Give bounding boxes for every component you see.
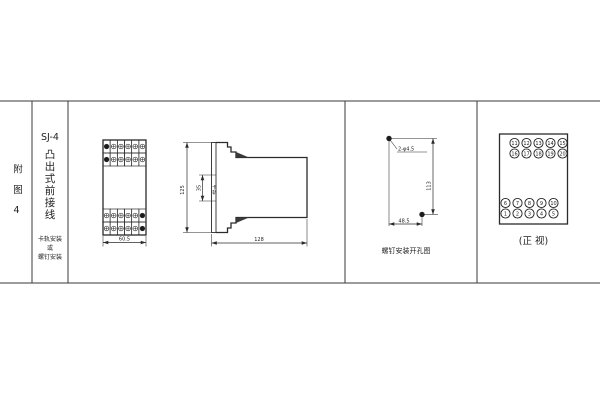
side-depth-dim: 128 bbox=[254, 237, 264, 243]
terminal-number: 17 bbox=[523, 151, 529, 157]
front-width-dim: 60.5 bbox=[119, 237, 130, 243]
terminal-number: 13 bbox=[535, 141, 541, 147]
mount-line: 螺钉安装 bbox=[32, 254, 68, 263]
terminal-number: 2 bbox=[516, 211, 519, 217]
terminal-number: 16 bbox=[511, 151, 517, 157]
terminal-number: 18 bbox=[535, 151, 541, 157]
din-rail-label: 卡轨 bbox=[209, 178, 218, 202]
front-terminal-blocks bbox=[103, 140, 146, 235]
side-rail-dim: 35 bbox=[196, 185, 202, 191]
mounting-hole-diagram: 2-φ4.5 113 48.5 螺钉安装开孔图 bbox=[382, 136, 439, 255]
mounting-hole-icon bbox=[386, 136, 391, 141]
terminal-number: 7 bbox=[516, 201, 519, 207]
hole-horizontal-dim: 48.5 bbox=[398, 218, 409, 224]
sheet-frame bbox=[0, 101, 600, 283]
wiring-type-label: 凸出式前接线 bbox=[32, 148, 68, 222]
hole-vertical-dim: 113 bbox=[426, 181, 432, 191]
mounting-hole-icon bbox=[419, 212, 424, 217]
drawing-sheet: 60.5 125 35 128 bbox=[0, 0, 600, 400]
terminal-number: 20 bbox=[559, 151, 565, 157]
latch-wedge-bottom bbox=[236, 218, 249, 224]
screw-icon bbox=[104, 157, 109, 162]
front-outline-view: 60.5 bbox=[103, 140, 146, 247]
technical-drawing: 60.5 125 35 128 bbox=[0, 0, 600, 400]
latch-wedge-top bbox=[236, 152, 249, 158]
terminal-number: 5 bbox=[552, 211, 555, 217]
terminal-number: 1 bbox=[504, 211, 507, 217]
hole-diagram-caption: 螺钉安装开孔图 bbox=[382, 246, 431, 255]
terminal-number: 4 bbox=[540, 211, 543, 217]
side-outline-view: 125 35 128 bbox=[180, 143, 307, 247]
terminal-number: 15 bbox=[559, 141, 565, 147]
screw-icon bbox=[104, 144, 109, 149]
terminal-number: 3 bbox=[528, 211, 531, 217]
screw-icon bbox=[140, 213, 145, 218]
terminal-number: 9 bbox=[540, 201, 543, 207]
terminal-number: 11 bbox=[511, 141, 517, 147]
model-label: SJ-4 bbox=[32, 130, 68, 144]
screw-icon bbox=[140, 226, 145, 231]
mounting-method-label: 卡轨安装 或 螺钉安装 bbox=[32, 236, 68, 262]
terminal-circles: 1112131415161718192067891012345 bbox=[501, 138, 567, 218]
terminal-number: 6 bbox=[504, 201, 507, 207]
side-height-dim: 125 bbox=[180, 185, 186, 195]
terminal-number: 14 bbox=[547, 141, 553, 147]
terminal-numbering-view: 1112131415161718192067891012345 (正 视) bbox=[500, 134, 568, 247]
terminal-number: 12 bbox=[523, 141, 529, 147]
terminal-number: 19 bbox=[547, 151, 553, 157]
mount-line: 卡轨安装 bbox=[32, 236, 68, 245]
terminal-view-caption: (正 视) bbox=[519, 235, 548, 247]
figure-number-label: 附图4 bbox=[0, 163, 32, 227]
terminal-number: 8 bbox=[528, 201, 531, 207]
terminal-number: 10 bbox=[550, 201, 556, 207]
mount-line: 或 bbox=[32, 245, 68, 254]
holes-label: 2-φ4.5 bbox=[398, 147, 414, 153]
